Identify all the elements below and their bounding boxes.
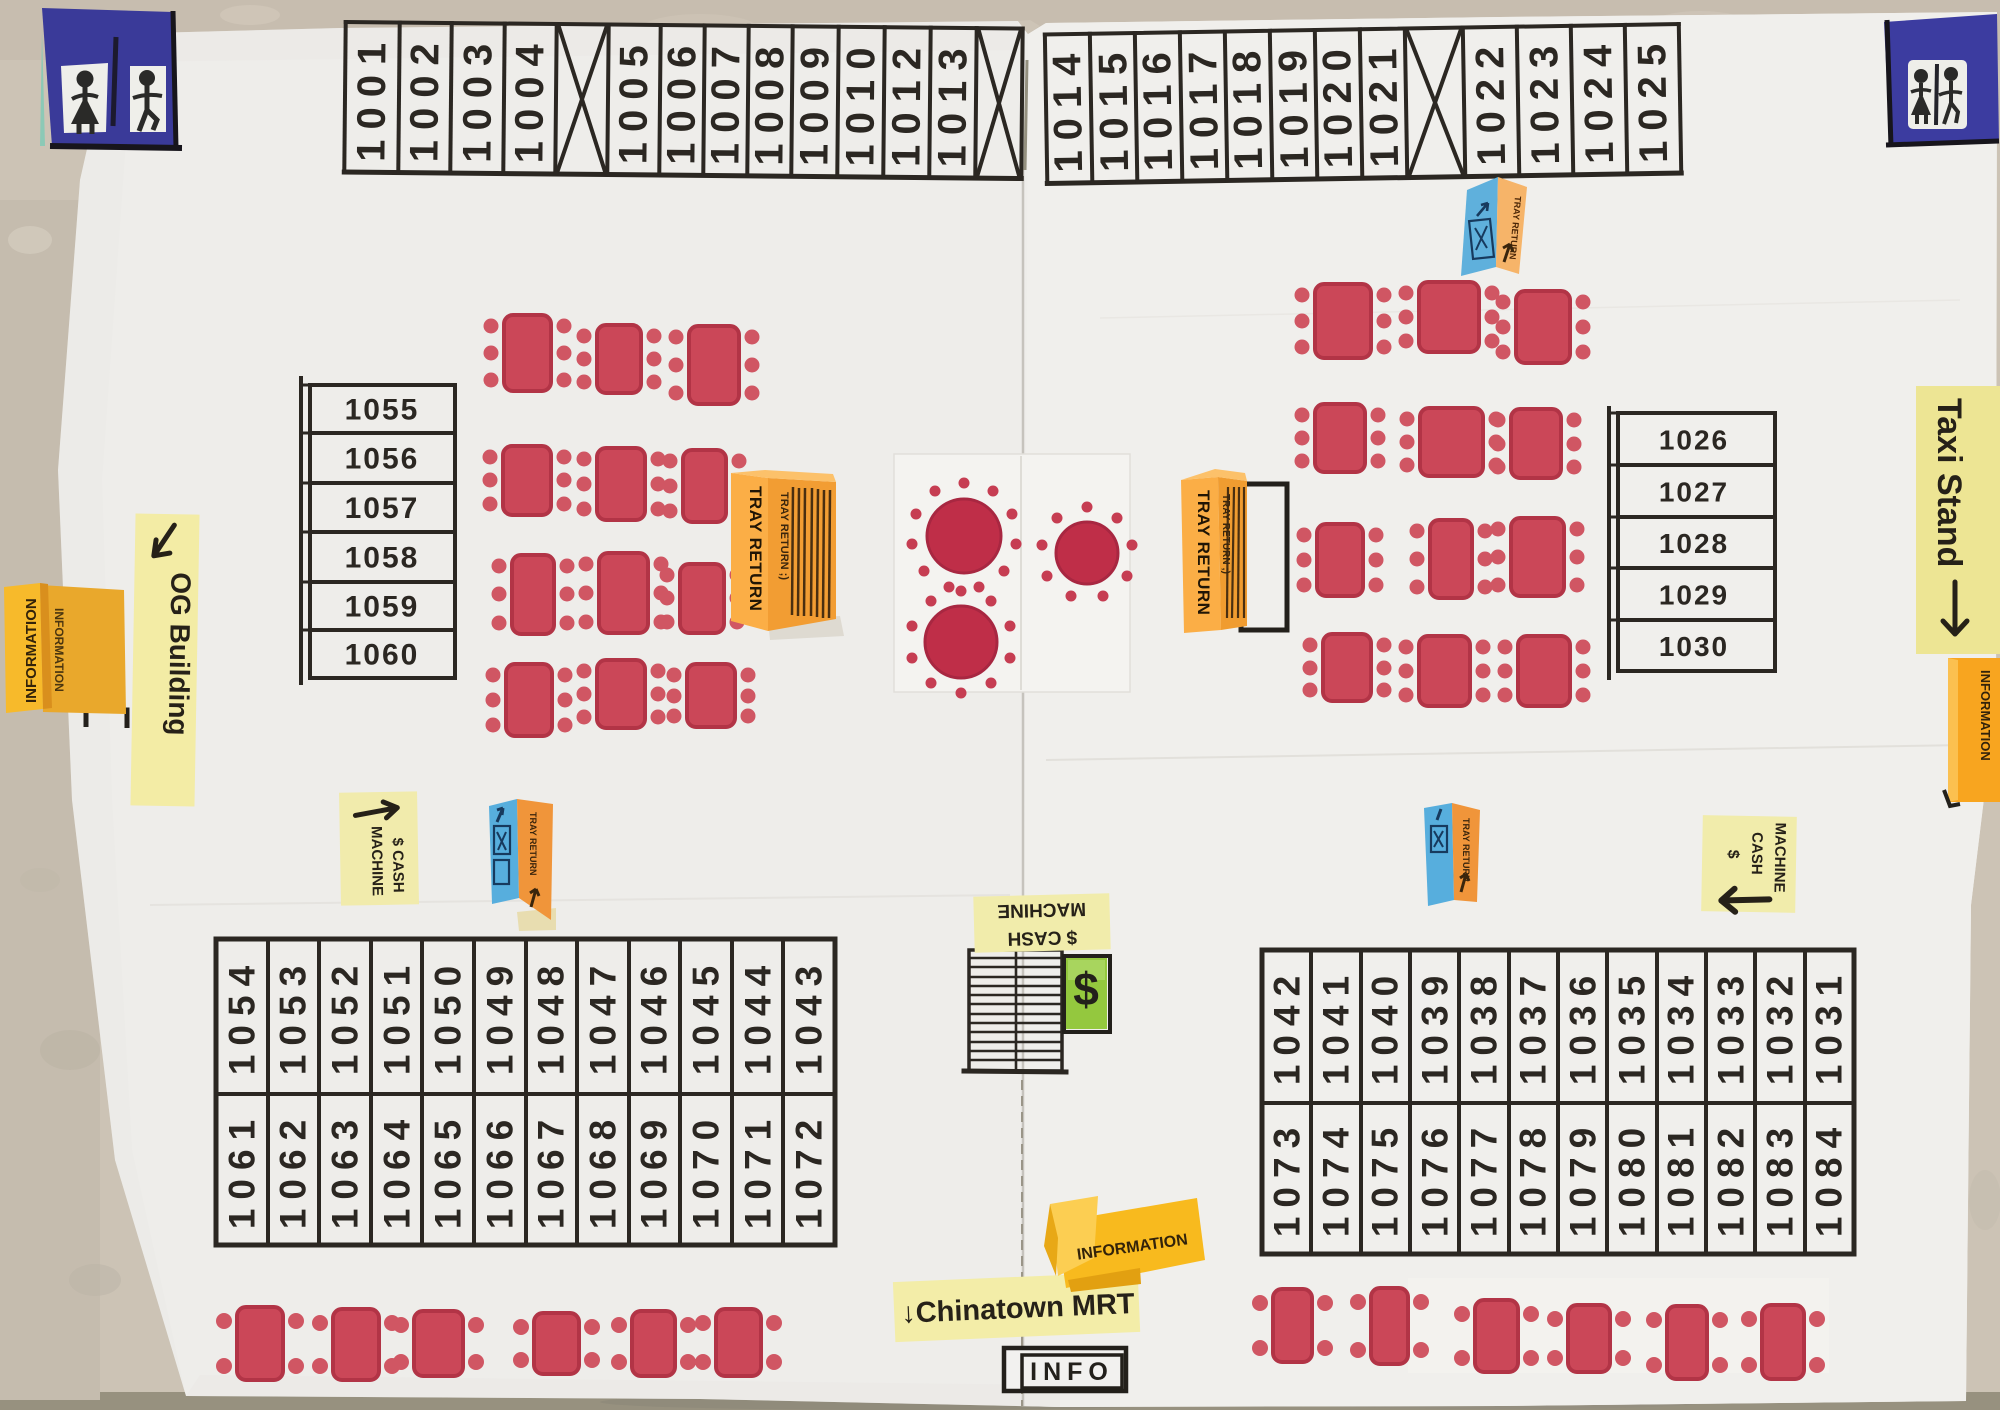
svg-text:1014: 1014 <box>1045 43 1091 173</box>
svg-text:1044: 1044 <box>738 957 779 1075</box>
svg-text:1082: 1082 <box>1711 1119 1752 1237</box>
svg-text:1054: 1054 <box>222 957 263 1075</box>
svg-text:1041: 1041 <box>1316 967 1357 1085</box>
svg-text:$: $ <box>1724 850 1741 859</box>
svg-text:INFORMATION: INFORMATION <box>52 608 66 692</box>
svg-text:1043: 1043 <box>789 957 830 1075</box>
svg-text:1079: 1079 <box>1563 1119 1604 1237</box>
svg-text:1073: 1073 <box>1267 1119 1308 1237</box>
svg-text:1009: 1009 <box>792 37 837 166</box>
svg-text:1021: 1021 <box>1361 38 1407 168</box>
svg-text:$ CASH: $ CASH <box>389 838 407 893</box>
svg-text:1006: 1006 <box>659 36 704 165</box>
svg-text:1059: 1059 <box>345 591 420 624</box>
svg-text:1020: 1020 <box>1315 39 1361 169</box>
svg-text:1065: 1065 <box>428 1111 469 1229</box>
svg-text:1002: 1002 <box>402 33 447 162</box>
svg-text:1025: 1025 <box>1630 34 1676 164</box>
svg-text:1056: 1056 <box>345 443 420 476</box>
svg-text:1066: 1066 <box>480 1111 521 1229</box>
svg-text:1068: 1068 <box>583 1111 624 1229</box>
svg-text:1050: 1050 <box>428 957 469 1075</box>
svg-text:1032: 1032 <box>1760 967 1801 1085</box>
svg-text:TRAY RETURN ;): TRAY RETURN ;) <box>778 492 790 580</box>
svg-text:1074: 1074 <box>1316 1119 1357 1237</box>
svg-text:1016: 1016 <box>1135 42 1181 172</box>
svg-text:1036: 1036 <box>1563 967 1604 1085</box>
svg-text:1071: 1071 <box>738 1111 779 1229</box>
svg-text:1010: 1010 <box>838 37 883 166</box>
svg-text:1061: 1061 <box>222 1111 263 1229</box>
svg-text:1084: 1084 <box>1809 1119 1850 1237</box>
svg-text:1064: 1064 <box>377 1111 418 1229</box>
svg-text:1001: 1001 <box>349 33 394 162</box>
svg-text:1052: 1052 <box>325 957 366 1075</box>
svg-text:$ CASH: $ CASH <box>1007 926 1077 949</box>
svg-text:1022: 1022 <box>1468 36 1514 166</box>
svg-text:1005: 1005 <box>611 35 656 164</box>
svg-text:1031: 1031 <box>1809 967 1850 1085</box>
svg-text:1072: 1072 <box>789 1111 830 1229</box>
svg-text:TRAY RETURN: TRAY RETURN <box>1461 818 1471 882</box>
svg-text:1039: 1039 <box>1415 967 1456 1085</box>
svg-text:1083: 1083 <box>1760 1119 1801 1237</box>
svg-text:1013: 1013 <box>930 38 975 167</box>
svg-text:MACHINE: MACHINE <box>1771 822 1789 892</box>
svg-text:1069: 1069 <box>634 1111 675 1229</box>
svg-text:TRAY RETURN: TRAY RETURN <box>1194 490 1213 615</box>
svg-text:1003: 1003 <box>455 34 500 163</box>
svg-text:OG Building: OG Building <box>163 572 197 736</box>
svg-text:1026: 1026 <box>1659 425 1729 456</box>
svg-text:1076: 1076 <box>1415 1119 1456 1237</box>
svg-text:1063: 1063 <box>325 1111 366 1229</box>
svg-text:1017: 1017 <box>1181 41 1227 171</box>
svg-text:1037: 1037 <box>1513 967 1554 1085</box>
svg-text:1049: 1049 <box>480 957 521 1075</box>
svg-text:1019: 1019 <box>1271 40 1317 170</box>
svg-text:1062: 1062 <box>273 1111 314 1229</box>
svg-text:1078: 1078 <box>1513 1119 1554 1237</box>
svg-text:1023: 1023 <box>1522 35 1568 165</box>
svg-text:1057: 1057 <box>345 492 420 525</box>
svg-text:1042: 1042 <box>1267 967 1308 1085</box>
svg-text:1030: 1030 <box>1659 631 1729 662</box>
svg-text:CASH: CASH <box>1748 832 1766 875</box>
svg-text:1055: 1055 <box>345 394 420 427</box>
svg-text:1018: 1018 <box>1225 40 1271 170</box>
svg-text:1034: 1034 <box>1661 967 1702 1085</box>
svg-text:1048: 1048 <box>531 957 572 1075</box>
svg-text:1075: 1075 <box>1365 1119 1406 1237</box>
svg-text:1035: 1035 <box>1612 967 1653 1085</box>
svg-text:1028: 1028 <box>1659 528 1729 559</box>
svg-text:1045: 1045 <box>686 957 727 1075</box>
svg-text:1058: 1058 <box>345 542 420 575</box>
svg-text:TRAY RETURN: TRAY RETURN <box>528 812 538 876</box>
svg-text:1024: 1024 <box>1576 34 1622 164</box>
svg-text:INFORMATION: INFORMATION <box>1978 670 1993 761</box>
svg-text:1067: 1067 <box>531 1111 572 1229</box>
svg-text:Taxi Stand: Taxi Stand <box>1930 398 1968 567</box>
svg-text:1029: 1029 <box>1659 580 1729 611</box>
svg-text:1051: 1051 <box>377 957 418 1075</box>
svg-text:$: $ <box>1073 963 1099 1015</box>
svg-text:1007: 1007 <box>703 36 748 165</box>
svg-text:TRAY RETURN ;): TRAY RETURN ;) <box>1220 494 1231 574</box>
svg-text:1053: 1053 <box>273 957 314 1075</box>
svg-text:1060: 1060 <box>345 639 420 672</box>
svg-text:INFO: INFO <box>1030 1358 1114 1386</box>
svg-text:1004: 1004 <box>507 34 552 163</box>
svg-text:1040: 1040 <box>1365 967 1406 1085</box>
svg-text:MACHINE: MACHINE <box>997 898 1086 921</box>
svg-text:1033: 1033 <box>1711 967 1752 1085</box>
svg-text:1080: 1080 <box>1612 1119 1653 1237</box>
svg-text:1077: 1077 <box>1464 1119 1505 1237</box>
svg-text:1008: 1008 <box>747 36 792 165</box>
svg-text:1046: 1046 <box>634 957 675 1075</box>
svg-text:TRAY RETURN: TRAY RETURN <box>746 486 765 611</box>
svg-text:1047: 1047 <box>583 957 624 1075</box>
svg-text:1081: 1081 <box>1661 1119 1702 1237</box>
svg-text:1015: 1015 <box>1091 43 1137 173</box>
svg-text:1012: 1012 <box>884 38 929 167</box>
svg-text:1070: 1070 <box>686 1111 727 1229</box>
svg-text:1027: 1027 <box>1659 477 1729 508</box>
svg-text:MACHINE: MACHINE <box>368 826 386 896</box>
svg-text:INFORMATION: INFORMATION <box>23 598 40 703</box>
svg-text:1038: 1038 <box>1464 967 1505 1085</box>
